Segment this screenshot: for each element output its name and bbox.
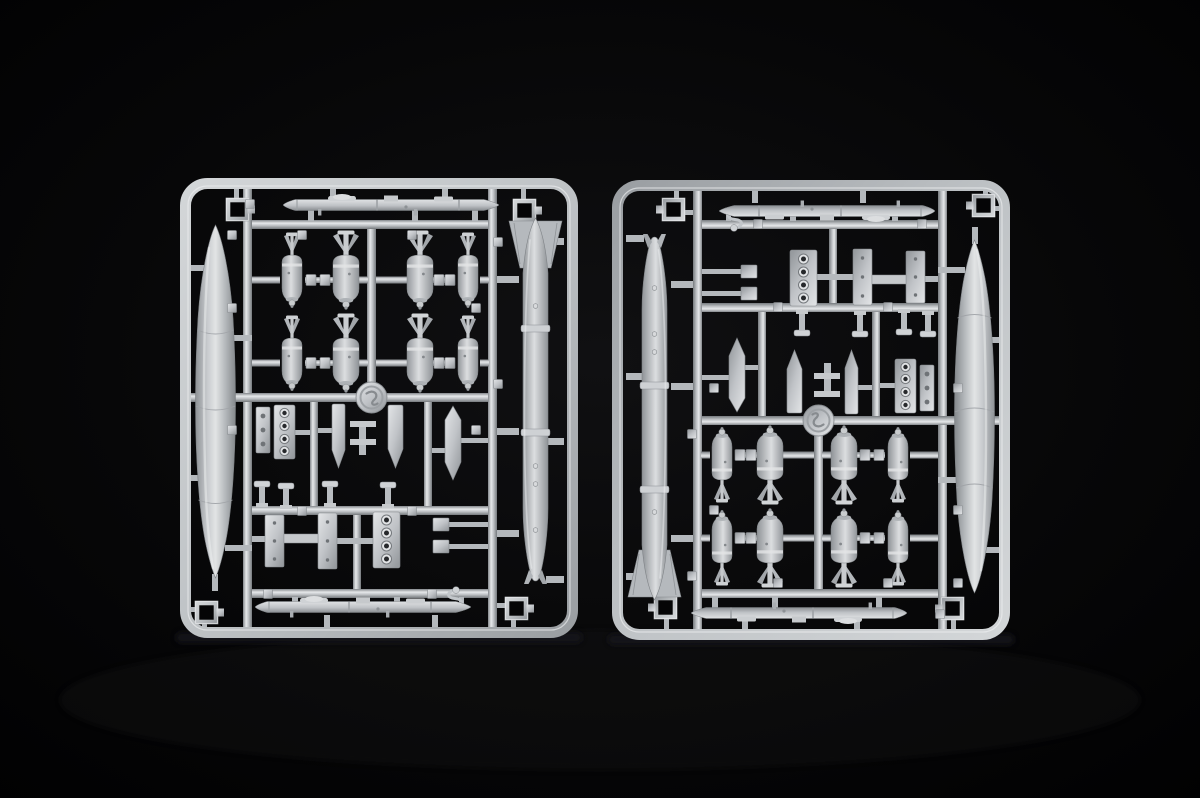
floor-sheen — [60, 630, 1140, 770]
photo-stage — [0, 0, 1200, 798]
sprue-photo — [0, 0, 1200, 798]
